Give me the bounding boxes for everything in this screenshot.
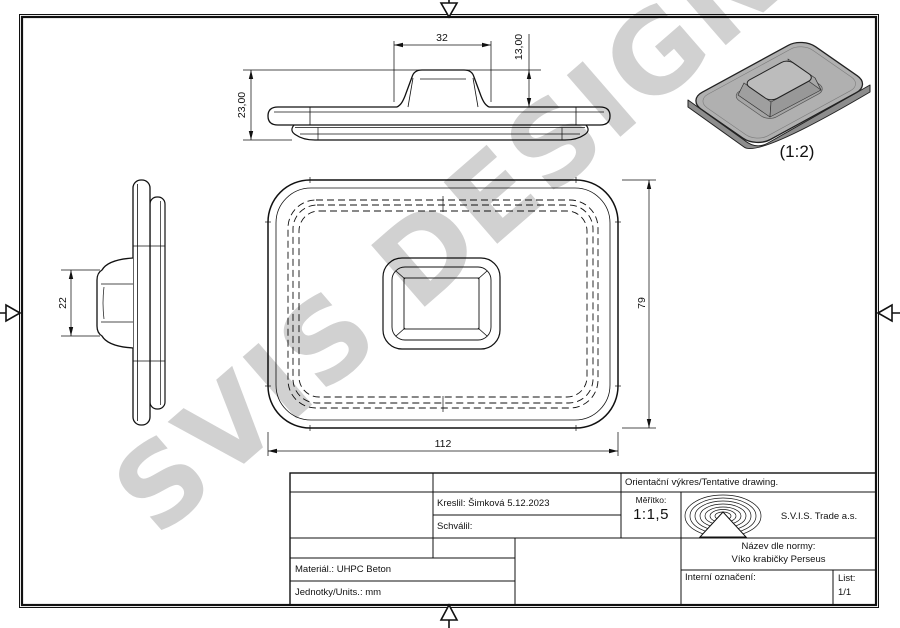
drawing-canvas: 32 13,00 23,00 22 [0, 0, 900, 628]
dim-112-label: 112 [435, 438, 452, 450]
dim-32-label: 32 [436, 32, 448, 44]
name-per-standard-label: Název dle normy: [681, 541, 876, 552]
dim-22-label: 22 [57, 297, 69, 309]
internal-designation-label: Interní označení: [685, 572, 756, 583]
dimension-knob-width [394, 41, 491, 102]
scale-label: Měřítko: [621, 495, 681, 505]
iso-view [688, 38, 870, 149]
title-block-grid [290, 473, 876, 605]
dim-79-label: 79 [636, 297, 648, 309]
side-view [97, 180, 165, 425]
company-name: S.V.I.S. Trade a.s. [765, 511, 873, 522]
iso-scale-label: (1:2) [780, 142, 815, 161]
centering-mark-right [878, 305, 900, 321]
plan-view [265, 177, 621, 431]
dim-13-label: 13,00 [513, 34, 525, 60]
centering-mark-left [0, 305, 20, 321]
centering-mark-bottom [441, 605, 457, 628]
part-name: Víko krabičky Perseus [681, 554, 876, 565]
svis-logo [685, 495, 761, 537]
dimension-knob-height [243, 34, 541, 107]
drawing-sheet: 32 13,00 23,00 22 [0, 0, 900, 628]
units-field: Jednotky/Units.: mm [295, 587, 381, 598]
material-field: Materiál.: UHPC Beton [295, 564, 391, 575]
scale-value: 1:1,5 [621, 506, 681, 523]
tentative-drawing-note: Orientační výkres/Tentative drawing. [625, 477, 778, 488]
drawn-by-field: Kreslil: Šimková 5.12.2023 [437, 498, 549, 509]
dim-23-label: 23,00 [236, 92, 248, 118]
approved-by-field: Schválil: [437, 521, 472, 532]
sheet-label: List: [838, 573, 855, 584]
sheet-number: 1/1 [838, 587, 851, 598]
dimension-total-height [243, 70, 292, 140]
front-view [268, 70, 610, 140]
